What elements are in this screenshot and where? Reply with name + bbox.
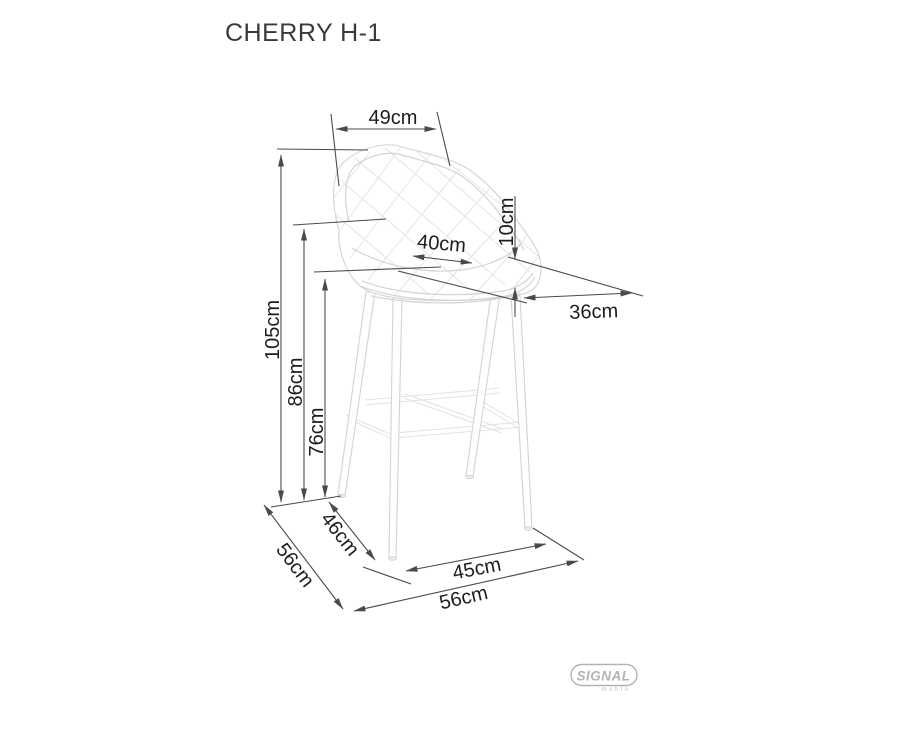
chair-leg-back-left [338,292,375,496]
dim-label-total-height: 105cm [262,300,284,360]
dim-label-total-depth: 56cm [271,539,318,591]
dim-label-feet-depth: 46cm [316,508,363,560]
dim-label-seat-height: 76cm [306,408,328,457]
chair-drawing [330,145,562,560]
dim-feet-depth: 46cm [316,502,375,560]
page-title: CHERRY H-1 [225,19,382,47]
logo-subtitle-text: meble [602,687,631,693]
dimension-drawing-canvas: CHERRY H-1 [0,0,900,729]
foot-cap [466,475,474,479]
logo-brand-text: SIGNAL [576,669,630,684]
chair-leg-front-right [511,296,532,528]
chair-footrest [346,388,523,439]
chair-leg-back-right [466,294,500,477]
dim-seat-depth: 36cm [524,293,632,324]
dim-label-total-width: 56cm [437,582,490,614]
dim-label-back-width: 49cm [369,107,418,129]
dim-label-cushion-thickness: 10cm [496,198,518,247]
foot-cap [389,557,397,561]
brand-logo: SIGNAL meble [571,665,637,694]
foot-cap [525,527,533,531]
bar-stool-dimension-drawing: CHERRY H-1 [0,0,900,729]
chair-leg-front-left [389,298,402,558]
dim-label-seat-depth: 36cm [569,300,619,324]
dim-label-seat-width: 40cm [416,231,467,257]
dim-label-back-lower-height: 86cm [285,358,307,407]
